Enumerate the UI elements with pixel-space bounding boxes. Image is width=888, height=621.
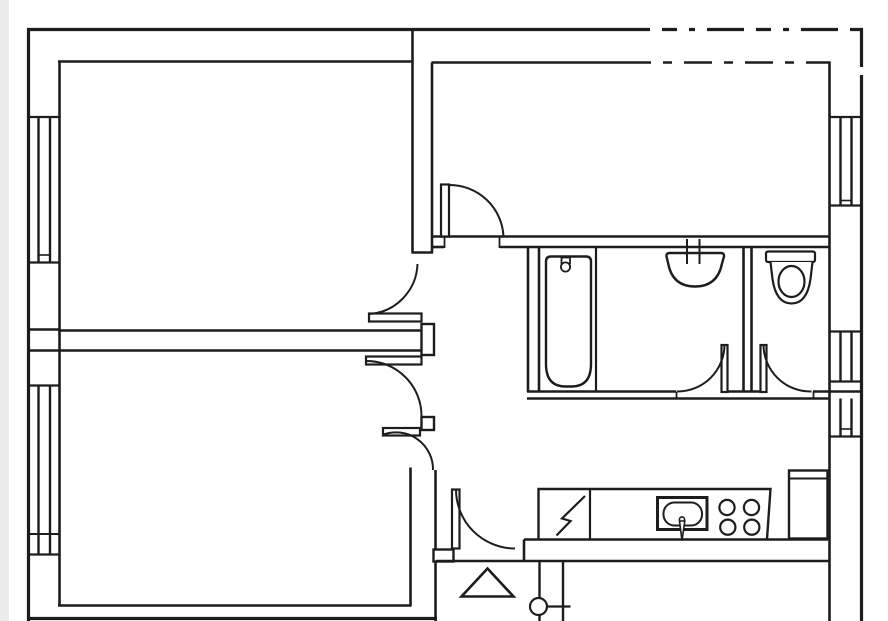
kitchen-cabinet-symbol: [557, 496, 586, 536]
door-top-right-arc: [449, 185, 504, 237]
door-bathroom-arc: [677, 345, 725, 392]
door-upper-left-room-leaf: [369, 314, 422, 322]
entry-triangle-symbol: [462, 569, 514, 597]
floor-plan-svg: [0, 0, 888, 621]
door-top-right-leaf: [441, 185, 449, 237]
wall-center-block-a: [422, 324, 435, 355]
gas-meter-circle: [530, 598, 547, 615]
page-edge-strip: [0, 0, 9, 621]
door-lower-left-room-arc: [367, 361, 422, 416]
stove-burner-4: [744, 520, 759, 535]
bathtub-faucet: [561, 262, 570, 271]
kitchen-drain-drip: [680, 521, 685, 541]
wall-center-block-b: [422, 417, 435, 430]
door-hall-arc: [456, 490, 515, 549]
kitchen-unit-outline: [539, 489, 771, 539]
stove-burner-3: [720, 520, 735, 535]
room-lower-left: [59, 350, 411, 606]
door-wc-arc: [764, 345, 812, 392]
stove-burner-2: [744, 500, 759, 515]
kitchen: [435, 397, 829, 561]
stove-burner-1: [719, 500, 734, 515]
door-upper-left-room-arc: [370, 264, 418, 314]
floor-plan-canvas: [0, 0, 888, 621]
hallway: [435, 248, 528, 548]
bathtub: [546, 257, 591, 387]
kitchen-cupboard: [789, 471, 828, 539]
toilet-tank: [766, 252, 815, 263]
room-upper-left: [59, 61, 413, 331]
bathroom-sink: [666, 253, 724, 287]
door-closet-arc: [384, 432, 434, 470]
room-upper-right: [433, 62, 829, 237]
